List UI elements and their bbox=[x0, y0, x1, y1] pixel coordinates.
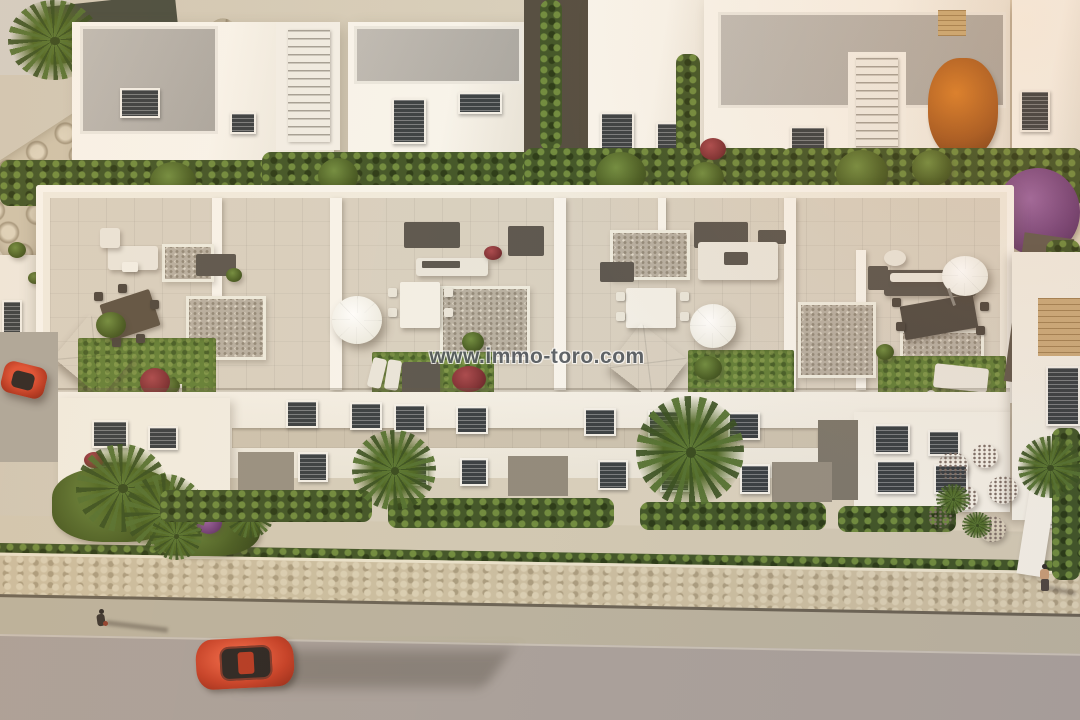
coffee-table bbox=[724, 252, 748, 265]
chair bbox=[388, 288, 397, 297]
ball-shrub bbox=[988, 476, 1018, 504]
chair bbox=[444, 308, 453, 317]
recessed-patio bbox=[238, 452, 294, 490]
chair bbox=[616, 292, 625, 301]
palm-tree bbox=[1018, 436, 1080, 498]
pedestrian-head bbox=[99, 609, 104, 614]
shrub bbox=[8, 242, 26, 258]
small-tree bbox=[96, 312, 126, 338]
window bbox=[286, 400, 318, 428]
parapet-wall bbox=[330, 198, 342, 390]
dining-table bbox=[626, 288, 676, 328]
window bbox=[120, 88, 160, 118]
pedestrian-legs bbox=[1041, 579, 1049, 591]
exterior-staircase bbox=[288, 30, 330, 142]
outdoor-kitchen bbox=[600, 262, 634, 282]
ball-shrub bbox=[972, 444, 998, 468]
hedge-strip bbox=[676, 54, 700, 160]
brick-facade-detail bbox=[1038, 298, 1080, 356]
recessed-patio bbox=[508, 456, 568, 496]
watermark: www.immo-toro.com bbox=[429, 345, 644, 369]
round-umbrella bbox=[332, 296, 382, 344]
planter-shrub bbox=[694, 356, 722, 380]
chair bbox=[980, 302, 989, 311]
outdoor-sofa bbox=[100, 228, 120, 248]
chair bbox=[892, 298, 901, 307]
kitchen-cabinet bbox=[508, 226, 544, 256]
grass-tuft bbox=[962, 512, 992, 538]
window bbox=[394, 404, 426, 432]
pouf bbox=[884, 250, 906, 266]
window bbox=[740, 464, 770, 494]
window bbox=[230, 112, 256, 134]
round-umbrella bbox=[690, 304, 736, 348]
chair bbox=[444, 288, 453, 297]
chair bbox=[136, 334, 145, 343]
window bbox=[874, 424, 910, 454]
ac-unit bbox=[868, 266, 888, 290]
chair bbox=[94, 292, 103, 301]
chair bbox=[150, 300, 159, 309]
chair bbox=[118, 284, 127, 293]
brick-roof-detail bbox=[938, 10, 966, 36]
coffee-table bbox=[122, 262, 138, 272]
pedestrian-bag bbox=[103, 621, 108, 626]
window bbox=[148, 426, 178, 450]
flowering-shrub bbox=[700, 138, 726, 160]
kitchen-cabinet bbox=[404, 222, 460, 248]
car-roof-panel bbox=[237, 652, 254, 675]
grill-top bbox=[422, 261, 460, 268]
front-hedge bbox=[160, 490, 372, 522]
flat-roof bbox=[354, 26, 522, 84]
ball-shrub bbox=[938, 452, 968, 480]
gravel-roof bbox=[798, 302, 876, 378]
chair bbox=[388, 308, 397, 317]
window bbox=[876, 460, 916, 494]
red-flowers-pot bbox=[484, 246, 502, 260]
pedestrian-head bbox=[1042, 564, 1047, 569]
window bbox=[1046, 366, 1080, 426]
front-hedge bbox=[388, 498, 614, 528]
chair bbox=[896, 322, 905, 331]
palm-tree bbox=[636, 396, 744, 506]
window bbox=[598, 460, 628, 490]
chair bbox=[680, 312, 689, 321]
hedge-strip bbox=[540, 0, 562, 150]
orange-autumn-tree bbox=[928, 58, 998, 158]
exterior-staircase bbox=[856, 58, 898, 162]
tree bbox=[912, 150, 952, 186]
chair bbox=[616, 312, 625, 321]
planter-shrub bbox=[226, 268, 242, 282]
chair bbox=[976, 326, 985, 335]
planter-shrub bbox=[876, 344, 894, 360]
window bbox=[460, 458, 488, 486]
window bbox=[298, 452, 328, 482]
dining-table bbox=[400, 282, 440, 328]
window bbox=[584, 408, 616, 436]
aerial-render-scene: www.immo-toro.com bbox=[0, 0, 1080, 720]
window bbox=[1020, 90, 1050, 132]
chair bbox=[680, 292, 689, 301]
window bbox=[350, 402, 382, 430]
window bbox=[392, 98, 426, 144]
window bbox=[456, 406, 488, 434]
palm-tree bbox=[352, 430, 436, 510]
front-hedge bbox=[640, 502, 826, 530]
window bbox=[458, 92, 502, 114]
grass-tuft bbox=[936, 484, 970, 514]
recessed-patio bbox=[772, 462, 832, 502]
